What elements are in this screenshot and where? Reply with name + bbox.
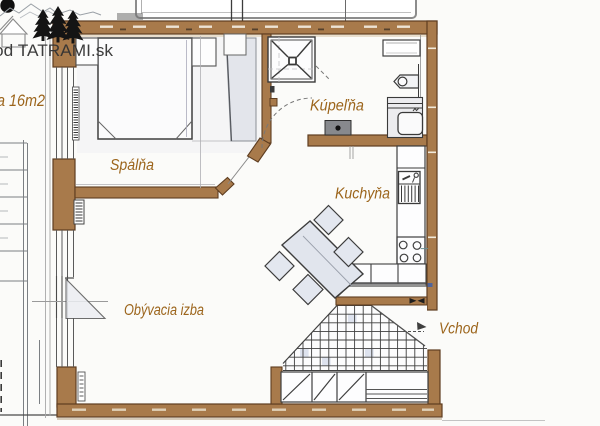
svg-text:a 16m2: a 16m2	[0, 92, 45, 110]
svg-text:Obývacia izba: Obývacia izba	[124, 302, 204, 319]
svg-text:Kúpeľňa: Kúpeľňa	[310, 98, 364, 115]
svg-text:Spálňa: Spálňa	[110, 157, 154, 174]
svg-text:Vchod: Vchod	[439, 321, 479, 338]
svg-text:od TATRAMI.sk: od TATRAMI.sk	[0, 42, 114, 60]
svg-text:Kuchyňa: Kuchyňa	[335, 186, 390, 203]
